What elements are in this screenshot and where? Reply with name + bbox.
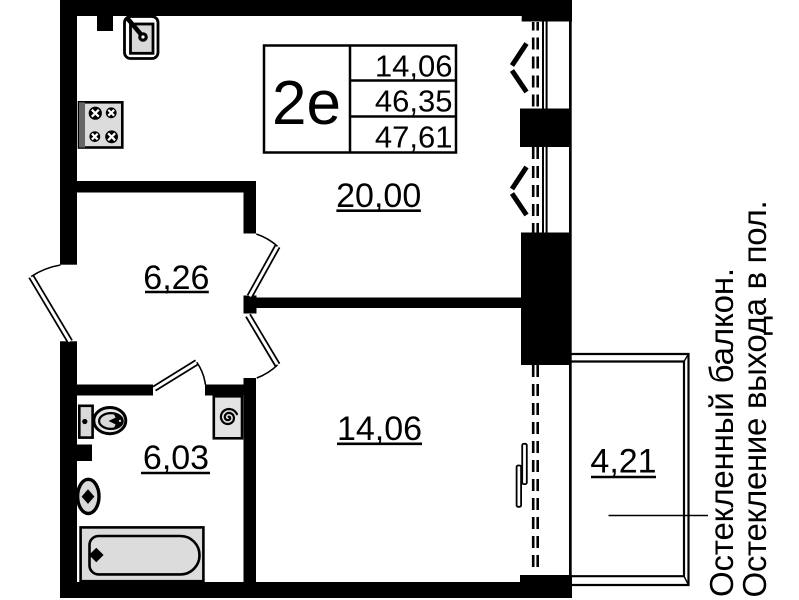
svg-text:46,35: 46,35 — [375, 84, 453, 119]
svg-text:2е: 2е — [272, 69, 341, 138]
svg-text:Остекленный балкон.: Остекленный балкон. — [703, 268, 740, 597]
svg-text:20,00: 20,00 — [336, 177, 421, 215]
svg-text:4,21: 4,21 — [590, 443, 656, 481]
svg-text:14,06: 14,06 — [337, 410, 422, 448]
svg-text:47,61: 47,61 — [375, 119, 453, 154]
svg-text:6,03: 6,03 — [143, 439, 209, 477]
svg-text:14,06: 14,06 — [375, 49, 453, 84]
svg-text:Остекление выхода в пол.: Остекление выхода в пол. — [736, 201, 773, 598]
